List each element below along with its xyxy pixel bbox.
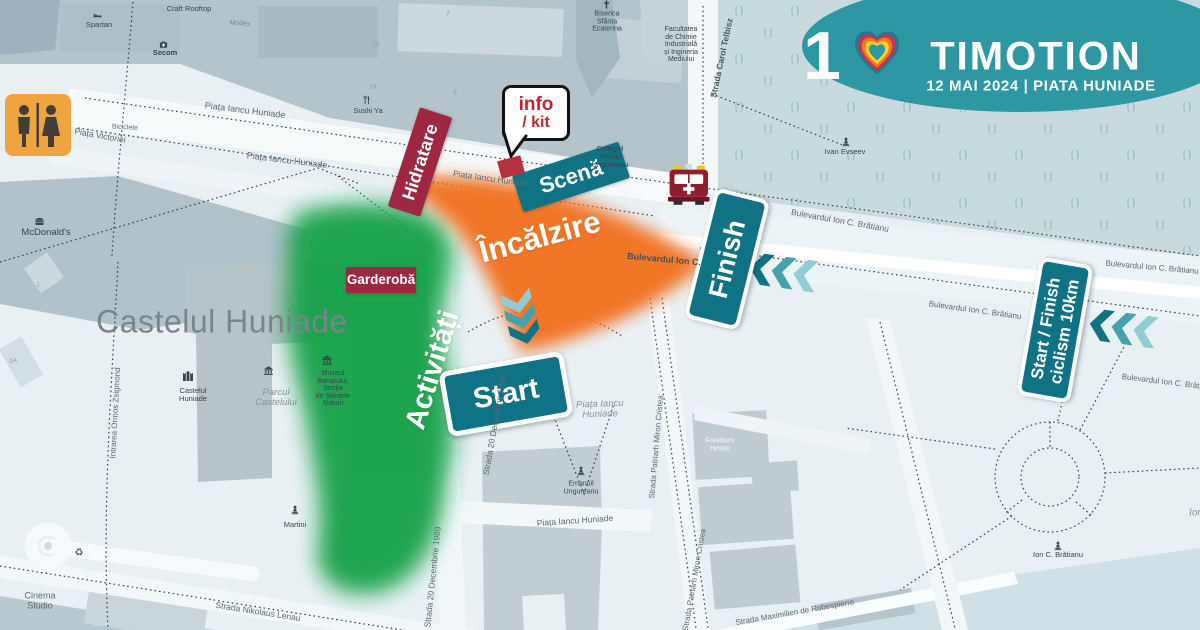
- poi-freeborn-hostel: FreebornHostel: [706, 437, 734, 452]
- poi-craft-rooftop: Craft Rooftop: [167, 5, 212, 13]
- poi-martini: Martini: [284, 521, 307, 529]
- poi-colegiul: ColegiulTehnicUngureanu: [591, 145, 628, 169]
- poi-modex: Modex: [229, 20, 250, 29]
- badge-subtitle: 12 MAI 2024 | PIATA HUNIADE: [926, 78, 1155, 95]
- burger-icon: [35, 218, 44, 225]
- poi-piata-park: Piața IancuHuniade: [576, 399, 624, 421]
- badge-title: TIMOTION: [930, 35, 1142, 80]
- building-number: 14: [369, 83, 376, 90]
- building-number: 1A: [9, 357, 17, 364]
- info-label: info: [519, 95, 554, 115]
- label-ion-partial: Ion: [1189, 509, 1200, 520]
- badge-number: 1: [803, 17, 841, 95]
- poi-ion-bratianu: Ion C. Brătianu: [1033, 551, 1083, 559]
- poi-mcdonalds: McDonald's: [21, 228, 70, 238]
- poi-sushi-ya: Sushi Ya: [353, 107, 382, 115]
- poi-ivan-evseev: Ivan Evseev: [825, 148, 866, 156]
- poi-biserica: BisericaSfântaEcaterina: [592, 11, 622, 34]
- poi-muzeul: MuzeulBanatului,Secțiade ȘtiințeleNaturi…: [316, 370, 351, 408]
- building-number: 2: [453, 88, 457, 95]
- recycle-icon: ♻: [75, 549, 84, 560]
- sign-garderoba: Garderobă: [346, 267, 416, 293]
- castle-title: Castelul Huniade: [96, 304, 348, 341]
- wc-icon: [5, 94, 71, 156]
- poi-castelul-small: CastelulHuniade: [179, 387, 207, 403]
- building-number: 7: [446, 10, 450, 17]
- ambulance-icon: [668, 164, 710, 205]
- street-biciclete: Biciclete: [112, 124, 138, 133]
- poi-emanuil: EmanuilUngureanu: [564, 480, 599, 495]
- poi-facultatea: Facultateade ChimieIndustrialăși Inginer…: [664, 26, 698, 64]
- building-number: 12: [372, 41, 379, 48]
- poi-spartan: Spartan: [86, 21, 112, 29]
- bubble-pointer: [501, 132, 529, 158]
- poi-secom: Secom: [153, 49, 178, 57]
- building-number: 1: [36, 281, 40, 288]
- event-map: 1 TIMOTION 12 MAI 2024 | PIATA HUNIADE H…: [0, 0, 1200, 630]
- kit-label: / kit: [522, 115, 550, 132]
- poi-cinema-studio: CinemaStudio: [24, 591, 55, 610]
- poi-parcul-castelului: ParculCastelului: [255, 388, 297, 409]
